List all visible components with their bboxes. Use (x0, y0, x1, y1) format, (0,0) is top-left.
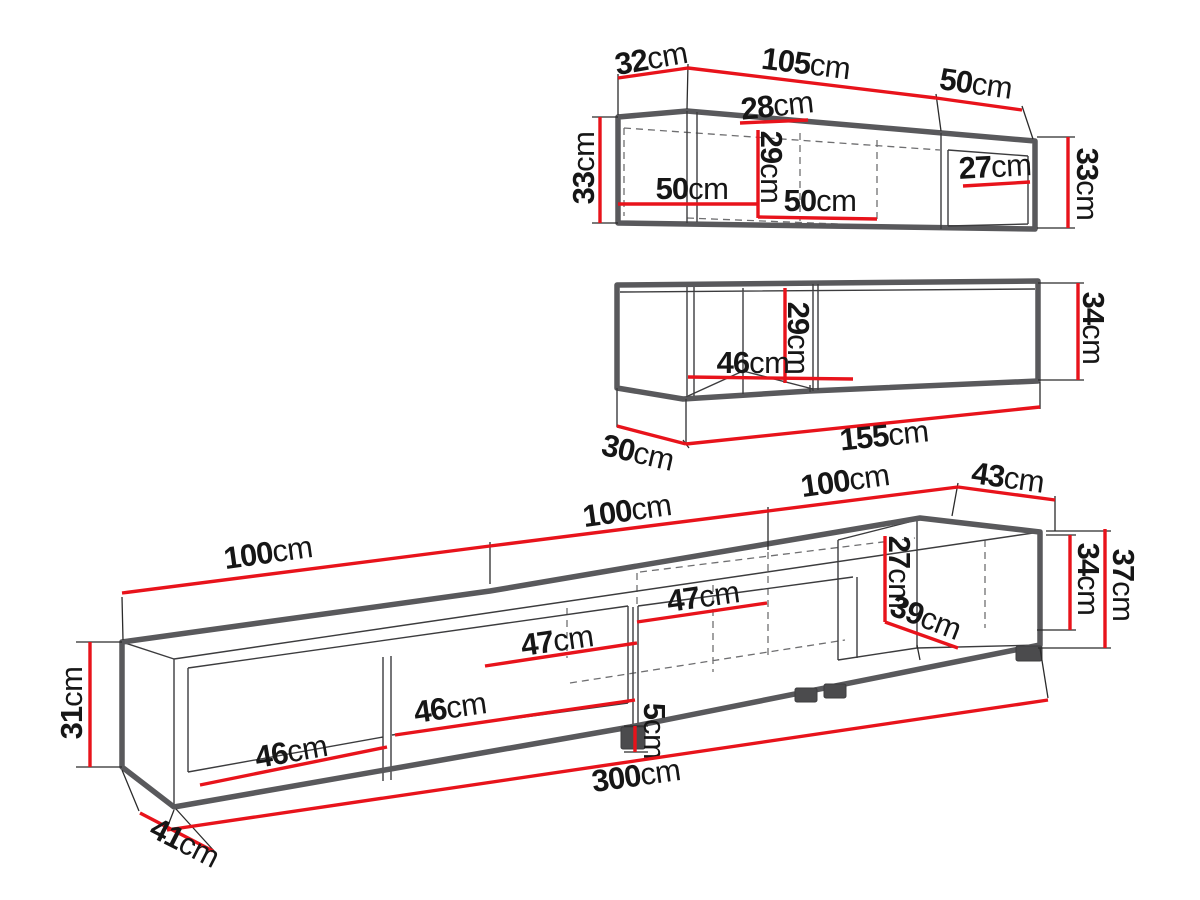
dimension-label-tv-stand-100cm: 100cm (221, 528, 314, 575)
wall-cabinet-b-details (617, 284, 1035, 444)
wall-cabinet-b-outline (617, 281, 1038, 399)
dimension-label-tv-stand-43cm: 43cm (970, 455, 1047, 500)
dimension-label-tv-stand-47cm: 47cm (519, 618, 596, 663)
tv-stand-foot (795, 688, 817, 702)
dimension-label-tv-stand-47cm: 47cm (665, 574, 742, 619)
dimension-label-wall-cabinet-a-33cm: 33cm (1071, 148, 1106, 221)
dimension-label-wall-cabinet-a-33cm: 33cm (566, 132, 601, 205)
dimension-label-tv-stand-100cm: 100cm (580, 486, 673, 533)
dimension-label-tv-stand-37cm: 37cm (1107, 549, 1142, 622)
dimension-label-wall-cabinet-a-50cm: 50cm (656, 171, 729, 206)
dimension-annotations: 32cm105cm50cm33cm28cm29cm50cm50cm27cm33c… (54, 34, 1142, 874)
dimension-label-wall-cabinet-a-27cm: 27cm (958, 147, 1033, 186)
dimension-label-wall-cabinet-b-30cm: 30cm (599, 427, 678, 477)
dimension-label-wall-cabinet-b-155cm: 155cm (838, 413, 930, 457)
dimension-label-wall-cabinet-b-34cm: 34cm (1077, 292, 1112, 365)
dimension-label-wall-cabinet-b-46cm: 46cm (717, 345, 790, 380)
dimension-label-tv-stand-46cm: 46cm (252, 727, 330, 774)
dimension-label-tv-stand-300cm: 300cm (589, 751, 682, 798)
dimension-label-tv-stand-34cm: 34cm (1072, 543, 1107, 616)
dimension-label-wall-cabinet-a-32cm: 32cm (612, 34, 690, 81)
furniture-dimension-diagram: 32cm105cm50cm33cm28cm29cm50cm50cm27cm33c… (0, 0, 1200, 900)
dimension-label-wall-cabinet-a-50cm: 50cm (784, 183, 857, 218)
tv-stand-foot (824, 684, 846, 698)
dimension-label-tv-stand-5cm: 5cm (638, 703, 673, 760)
dimension-label-tv-stand-31cm: 31cm (54, 667, 89, 740)
diagram-canvas: 32cm105cm50cm33cm28cm29cm50cm50cm27cm33c… (0, 0, 1200, 900)
